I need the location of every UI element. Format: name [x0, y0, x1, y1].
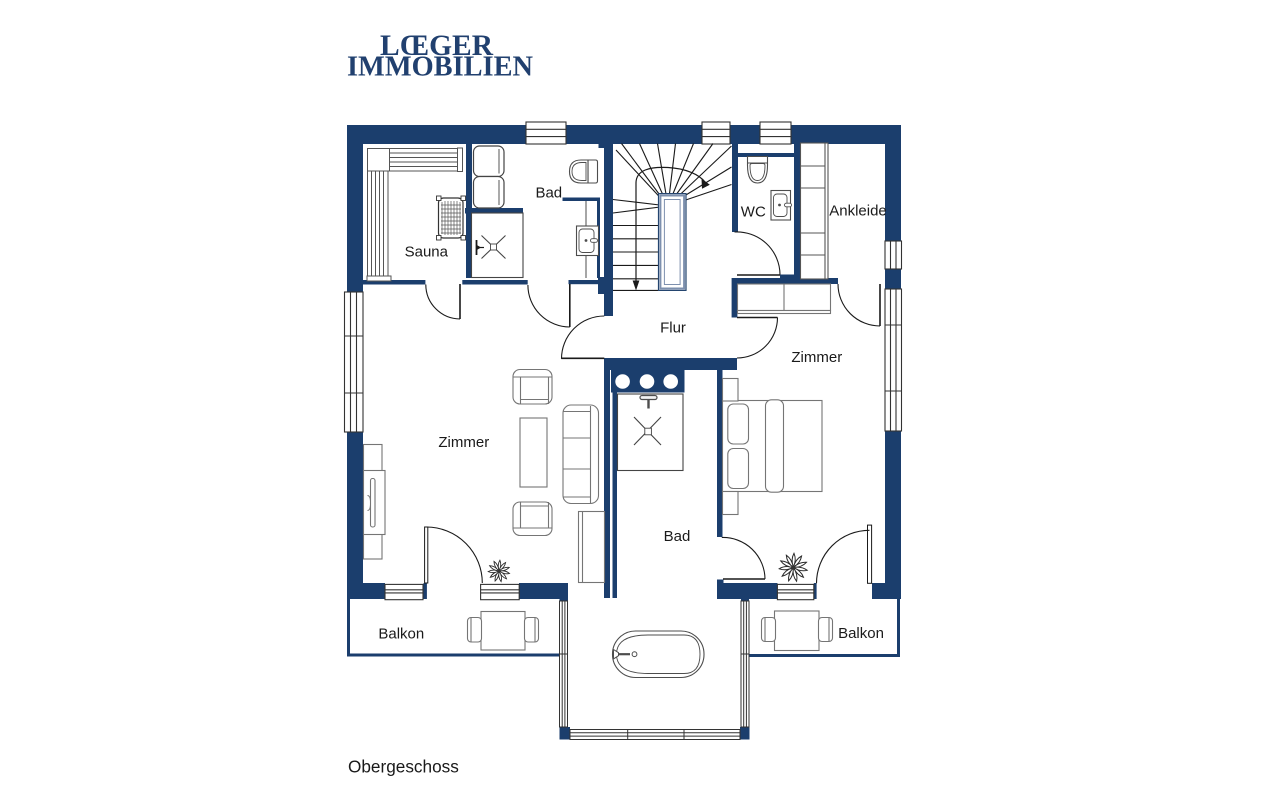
svg-text:Zimmer: Zimmer — [438, 434, 489, 451]
svg-text:IMMOBILIEN: IMMOBILIEN — [347, 51, 533, 83]
svg-text:Flur: Flur — [660, 320, 686, 337]
svg-text:Balkon: Balkon — [378, 626, 424, 643]
svg-text:Zimmer: Zimmer — [791, 349, 842, 366]
svg-text:Bad: Bad — [535, 185, 562, 202]
svg-text:Sauna: Sauna — [405, 244, 449, 261]
svg-text:Balkon: Balkon — [838, 625, 884, 642]
svg-text:Ankleide: Ankleide — [829, 203, 887, 220]
svg-text:WC: WC — [741, 204, 766, 221]
svg-text:Obergeschoss: Obergeschoss — [348, 757, 459, 777]
svg-text:Bad: Bad — [664, 528, 691, 545]
